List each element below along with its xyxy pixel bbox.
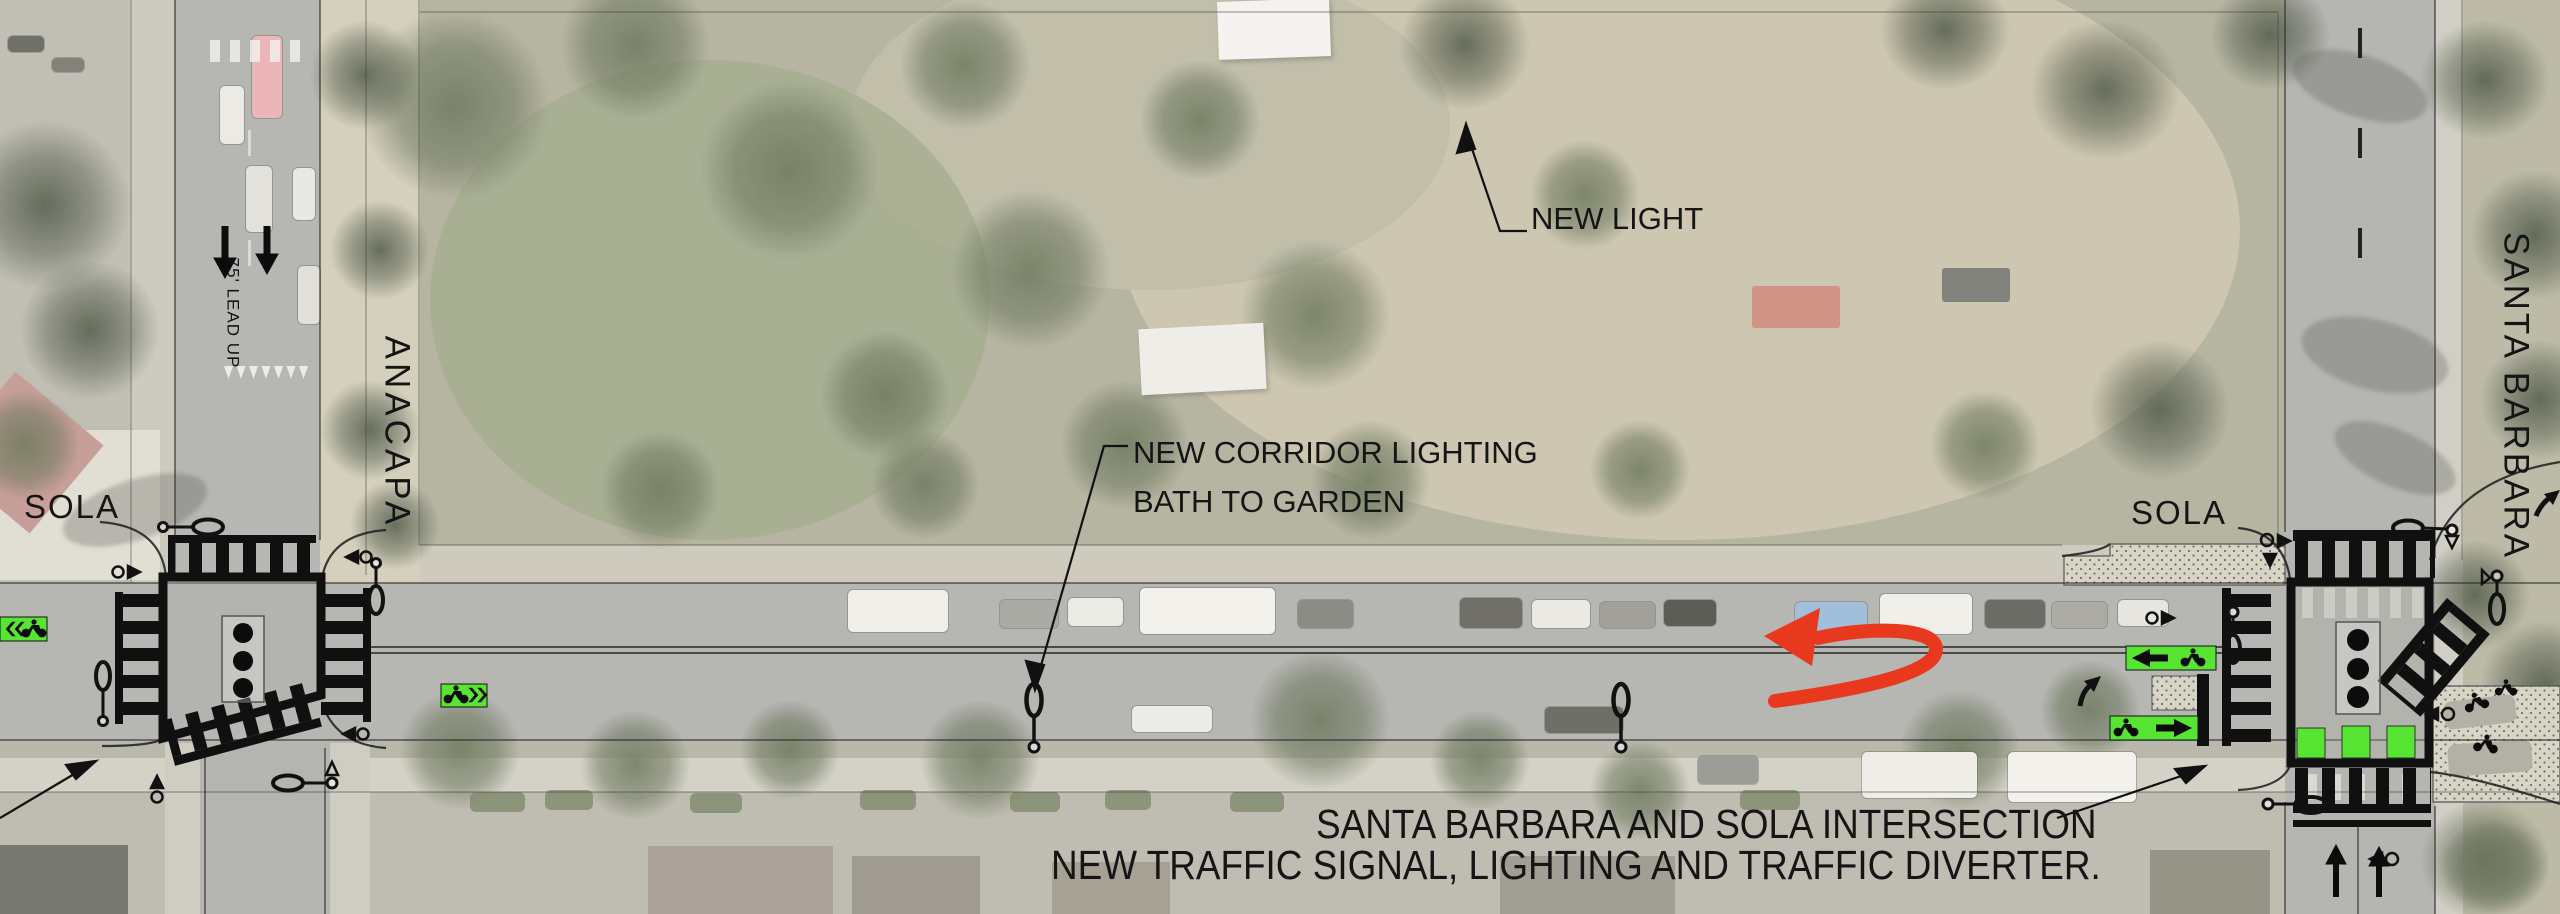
note-intersection-line1: SANTA BARBARA AND SOLA INTERSECTION — [1316, 804, 2097, 845]
street-label-anacapa: ANACAPA — [380, 336, 415, 529]
note-intersection-line2: NEW TRAFFIC SIGNAL, LIGHTING AND TRAFFIC… — [1051, 845, 2101, 886]
label-corridor-line1: NEW CORRIDOR LIGHTING — [1133, 428, 1538, 477]
street-light-icon — [369, 559, 383, 615]
street-light-icon — [1614, 684, 1629, 752]
photo-paint-marks — [210, 40, 300, 62]
street-label-santa-barbara: SANTA BARBARA — [2499, 232, 2534, 560]
label-new-light: NEW LIGHT — [1531, 203, 1703, 234]
street-light-icon — [159, 520, 224, 535]
street-centerline — [365, 647, 2222, 653]
street-label-sola-right: SOLA — [2131, 496, 2227, 529]
street-light-icon — [273, 762, 338, 791]
street-light-icon — [1027, 684, 1042, 752]
green-bike-boxes — [2297, 726, 2415, 758]
bike-lane-marker-icon — [441, 684, 487, 707]
bike-lane-marker-icon — [2110, 716, 2198, 740]
street-label-sola-left: SOLA — [24, 490, 120, 523]
bike-lane-marker-icon — [2126, 646, 2216, 670]
intersection-anacapa-sola — [115, 535, 371, 766]
turn-movement-arrow-red — [1764, 608, 1936, 701]
traffic-signal-icon — [2336, 622, 2380, 714]
traffic-plan-canvas: SOLA ANACAPA 75' LEAD UP NEW LIGHT NEW C… — [0, 0, 2560, 914]
label-lead-up: 75' LEAD UP — [225, 258, 242, 369]
label-corridor-lighting: NEW CORRIDOR LIGHTING BATH TO GARDEN — [1133, 428, 1538, 526]
diverter-bar — [2197, 674, 2209, 746]
street-light-icon — [2482, 570, 2504, 624]
traffic-signal-icon — [222, 616, 264, 702]
street-light-icon — [96, 662, 110, 726]
stop-bar — [2293, 820, 2431, 827]
label-corridor-line2: BATH TO GARDEN — [1133, 477, 1538, 526]
bike-lane-marker-icon — [0, 617, 47, 641]
lane-dashes — [248, 28, 2362, 266]
